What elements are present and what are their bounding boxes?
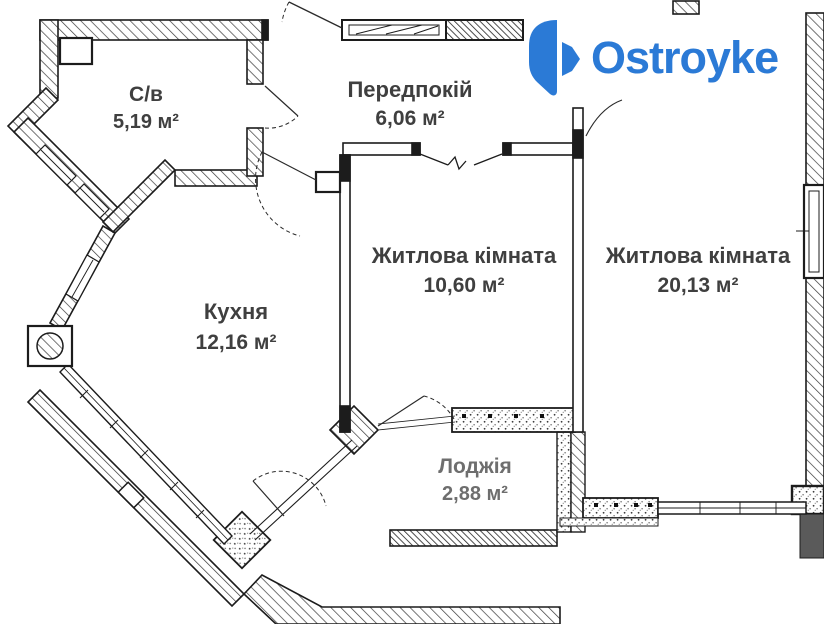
entrance-door-arc	[282, 2, 289, 22]
brand-wordmark: Ostroyke	[591, 32, 778, 83]
floor-plan-canvas: С/в 5,19 м² Передпокій 6,06 м² Кухня 12,…	[0, 0, 824, 624]
wall-bottom-edge	[244, 575, 560, 624]
partition-cap	[412, 143, 420, 155]
sill-room2	[583, 498, 658, 518]
room-area-kitchen: 12,16 м²	[196, 331, 277, 354]
entrance-door-leaf	[289, 2, 342, 28]
window-right-inner	[809, 191, 819, 272]
ostroyke-logo-icon	[529, 20, 580, 95]
wall-bathroom-bottom	[175, 170, 257, 186]
loggia-glass-wall	[250, 440, 357, 540]
wall-loggia-bottom	[390, 530, 557, 546]
room-name-living1: Житлова кімната	[371, 243, 557, 268]
partition-room1-top-left	[343, 143, 420, 155]
wall-bathroom-diagonal	[103, 160, 175, 232]
room-name-living2: Житлова кімната	[605, 243, 791, 268]
bathroom-niche	[60, 38, 92, 64]
partition-walls	[316, 108, 583, 432]
wall-top-block	[446, 20, 523, 40]
kitchen-door-leaf	[262, 152, 316, 180]
wall-cap	[262, 20, 268, 40]
room-area-bathroom: 5,19 м²	[113, 111, 179, 133]
room-area-hallway: 6,06 м²	[375, 107, 444, 130]
partition-room1-top-right	[503, 143, 573, 155]
partition-cap	[573, 130, 583, 158]
wall-right-lower	[806, 278, 824, 486]
logo-pin-shape	[529, 20, 557, 95]
partition-cap	[503, 143, 511, 155]
partition-room1-left	[340, 155, 350, 432]
room-area-living1: 10,60 м²	[424, 274, 505, 297]
room-area-loggia: 2,88 м²	[442, 483, 508, 505]
room-name-hallway: Передпокій	[347, 77, 472, 102]
brand-logo: Ostroyke	[529, 20, 778, 95]
wall-pier-top	[673, 1, 699, 14]
room-name-loggia: Лоджія	[438, 455, 512, 478]
wall-bathroom-right-upper	[247, 40, 263, 84]
room-labels: С/в 5,19 м² Передпокій 6,06 м² Кухня 12,…	[113, 77, 791, 505]
room-area-living2: 20,13 м²	[658, 274, 739, 297]
bathroom-door-leaf	[265, 86, 298, 116]
logo-house-shape	[562, 42, 580, 76]
sill-room1	[452, 408, 575, 432]
wall-bathroom-right-lower	[247, 128, 263, 176]
bathroom-door-arc	[265, 116, 298, 128]
loggia-door-arc	[253, 471, 326, 506]
wall-corner-piece	[330, 406, 378, 454]
opening-break-symbol	[420, 154, 502, 169]
column-shaft	[37, 333, 63, 359]
floorplan-page: С/в 5,19 м² Передпокій 6,06 м² Кухня 12,…	[0, 0, 824, 624]
sill-room2-strip	[560, 518, 658, 526]
balcony-door-arc	[424, 396, 454, 419]
partition-cap	[340, 155, 350, 181]
kitchen-door-jamb	[316, 172, 340, 192]
loggia-door-leaf	[253, 481, 284, 516]
room-name-kitchen: Кухня	[204, 299, 268, 324]
wall-right-upper	[806, 13, 824, 185]
block-bottom-right-grey	[800, 514, 824, 558]
room-name-bathroom: С/в	[129, 83, 163, 106]
wall-loggia-right-inner	[557, 432, 571, 532]
room2-door-arc	[586, 100, 622, 136]
partition-cap	[340, 406, 350, 432]
wall-bathroom-left	[40, 20, 58, 98]
